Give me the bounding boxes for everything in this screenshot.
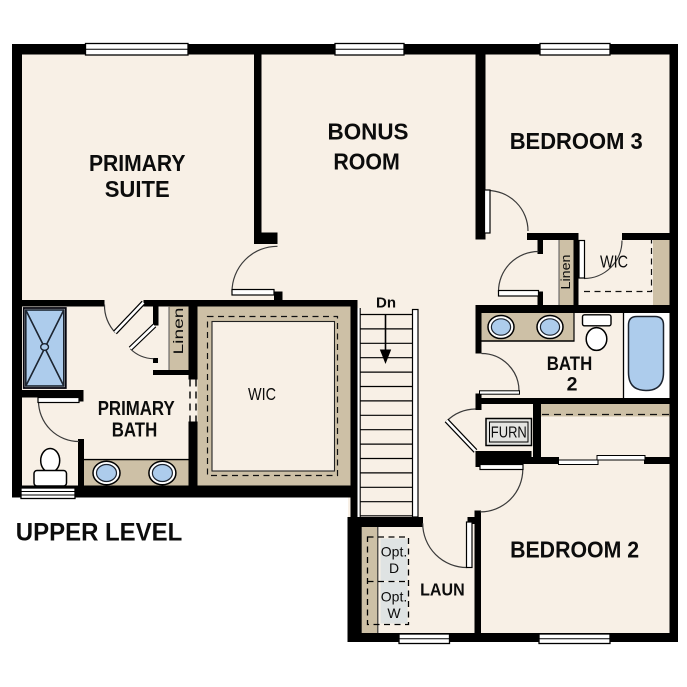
svg-text:UPPER LEVEL: UPPER LEVEL [16, 519, 183, 547]
svg-text:WIC: WIC [248, 384, 276, 404]
svg-text:SUITE: SUITE [105, 176, 170, 202]
svg-text:Opt.: Opt. [381, 589, 407, 605]
svg-text:W: W [387, 605, 401, 621]
svg-text:Linen: Linen [558, 255, 573, 290]
svg-text:Dn: Dn [376, 295, 396, 312]
svg-text:BATH: BATH [112, 420, 158, 442]
svg-text:LAUN: LAUN [420, 580, 465, 600]
svg-text:BEDROOM 3: BEDROOM 3 [510, 128, 643, 154]
svg-text:BEDROOM 2: BEDROOM 2 [510, 537, 639, 563]
svg-text:ROOM: ROOM [333, 149, 400, 175]
svg-text:Opt.: Opt. [381, 544, 407, 560]
svg-text:BONUS: BONUS [328, 119, 409, 145]
svg-text:PRIMARY: PRIMARY [89, 150, 186, 176]
svg-text:Linen: Linen [171, 308, 186, 355]
svg-text:WIC: WIC [600, 252, 628, 272]
svg-text:PRIMARY: PRIMARY [98, 398, 176, 420]
svg-text:BATH: BATH [547, 353, 593, 375]
svg-text:FURN: FURN [491, 425, 527, 442]
svg-text:D: D [389, 560, 399, 576]
svg-text:2: 2 [567, 373, 578, 395]
